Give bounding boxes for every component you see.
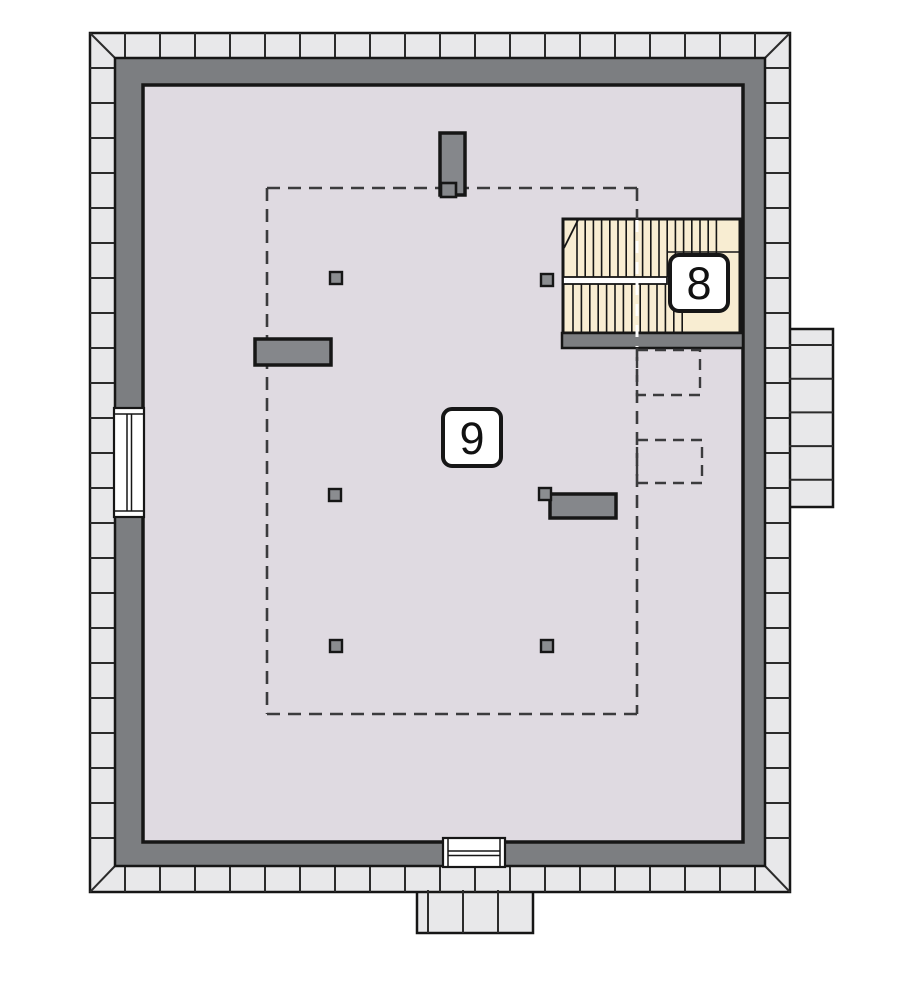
window-left: [114, 408, 144, 517]
floor-plan-drawing: [0, 0, 900, 999]
chimney-top-flue: [441, 183, 456, 197]
post-top-left: [330, 272, 342, 284]
post-mid-left: [329, 489, 341, 501]
post-mid-right: [539, 488, 551, 500]
post-bottom-right: [541, 640, 553, 652]
room-label-8: 8: [668, 253, 730, 313]
floor-plan-page: 9 8: [0, 0, 900, 999]
post-bottom-left: [330, 640, 342, 652]
stair-bottom-wall: [562, 333, 743, 348]
stair-handrail: [563, 277, 667, 284]
eaves-bump-bottom: [417, 890, 533, 933]
chimney-left: [255, 339, 331, 365]
room-label-9: 9: [441, 407, 503, 468]
window-bottom: [443, 838, 505, 867]
post-top-right: [541, 274, 553, 286]
chimney-right: [550, 494, 616, 518]
